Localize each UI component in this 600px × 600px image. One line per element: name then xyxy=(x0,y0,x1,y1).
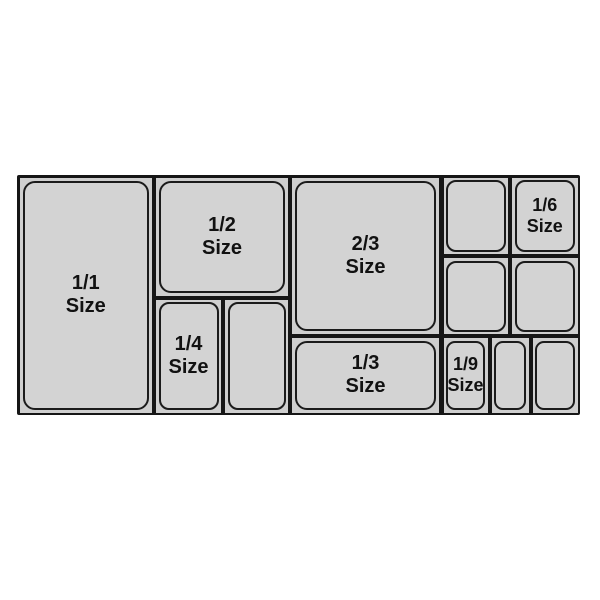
pan-1-3-fraction: 1/3 xyxy=(345,352,385,375)
pan-1-1-unit: Size xyxy=(66,295,106,318)
pan-cell-ninth-unlabeled-1 xyxy=(492,338,529,413)
pan-1-6-fraction: 1/6 xyxy=(527,195,563,216)
pan-1-2: 1/2 Size xyxy=(159,181,285,293)
pan-2-3-label: 2/3 Size xyxy=(345,233,385,279)
pan-cell-ninth-unlabeled-2 xyxy=(533,338,578,413)
pan-1-9-unit: Size xyxy=(447,375,483,396)
pan-1-2-fraction: 1/2 xyxy=(202,214,242,237)
pan-cell-1-1: 1/1 Size xyxy=(20,178,153,413)
pan-ninth-unlabeled-2 xyxy=(535,341,575,411)
pan-cell-1-9: 1/9 Size xyxy=(444,338,488,413)
pan-1-3-unit: Size xyxy=(345,375,385,398)
pan-ninth-unlabeled-1 xyxy=(494,341,526,411)
pan-cell-sixth-unlabeled-2 xyxy=(444,258,509,334)
pan-1-3: 1/3 Size xyxy=(295,341,436,410)
pan-2-3-unit: Size xyxy=(345,256,385,279)
pan-size-diagram: 1/1 Size 1/2 Size 1/4 Size xyxy=(0,0,600,600)
pan-1-9: 1/9 Size xyxy=(446,341,485,411)
pan-sixth-unlabeled-2 xyxy=(446,261,506,332)
pan-1-4-label: 1/4 Size xyxy=(168,333,208,379)
pan-1-4-unit: Size xyxy=(168,356,208,379)
pan-1-4: 1/4 Size xyxy=(159,302,219,410)
pan-cell-sixth-unlabeled-1 xyxy=(444,178,509,255)
diagram-frame: 1/1 Size 1/2 Size 1/4 Size xyxy=(17,175,580,415)
pan-2-3-fraction: 2/3 xyxy=(345,233,385,256)
pan-cell-1-4: 1/4 Size xyxy=(156,300,221,413)
pan-cell-1-6: 1/6 Size xyxy=(512,178,578,255)
pan-1-3-label: 1/3 Size xyxy=(345,352,385,398)
pan-1-2-unit: Size xyxy=(202,237,242,260)
pan-sixth-unlabeled-3 xyxy=(515,261,576,332)
pan-1-1-fraction: 1/1 xyxy=(66,272,106,295)
pan-1-4-fraction: 1/4 xyxy=(168,333,208,356)
pan-sixth-unlabeled-1 xyxy=(446,180,506,252)
pan-1-1: 1/1 Size xyxy=(23,181,150,410)
pan-cell-2-3: 2/3 Size xyxy=(292,178,439,335)
pan-cell-1-2: 1/2 Size xyxy=(156,178,288,296)
pan-1-6-label: 1/6 Size xyxy=(527,195,563,237)
pan-1-6-unit: Size xyxy=(527,216,563,237)
pan-1-2-label: 1/2 Size xyxy=(202,214,242,260)
pan-quarter-unlabeled xyxy=(228,302,286,410)
pan-1-9-fraction: 1/9 xyxy=(447,354,483,375)
pan-cell-sixth-unlabeled-3 xyxy=(512,258,578,334)
pan-1-9-label: 1/9 Size xyxy=(447,354,483,396)
pan-1-1-label: 1/1 Size xyxy=(66,272,106,318)
pan-2-3: 2/3 Size xyxy=(295,181,436,332)
pan-1-6: 1/6 Size xyxy=(515,180,576,252)
pan-cell-1-3: 1/3 Size xyxy=(292,338,439,413)
pan-cell-quarter-unlabeled xyxy=(225,300,288,413)
